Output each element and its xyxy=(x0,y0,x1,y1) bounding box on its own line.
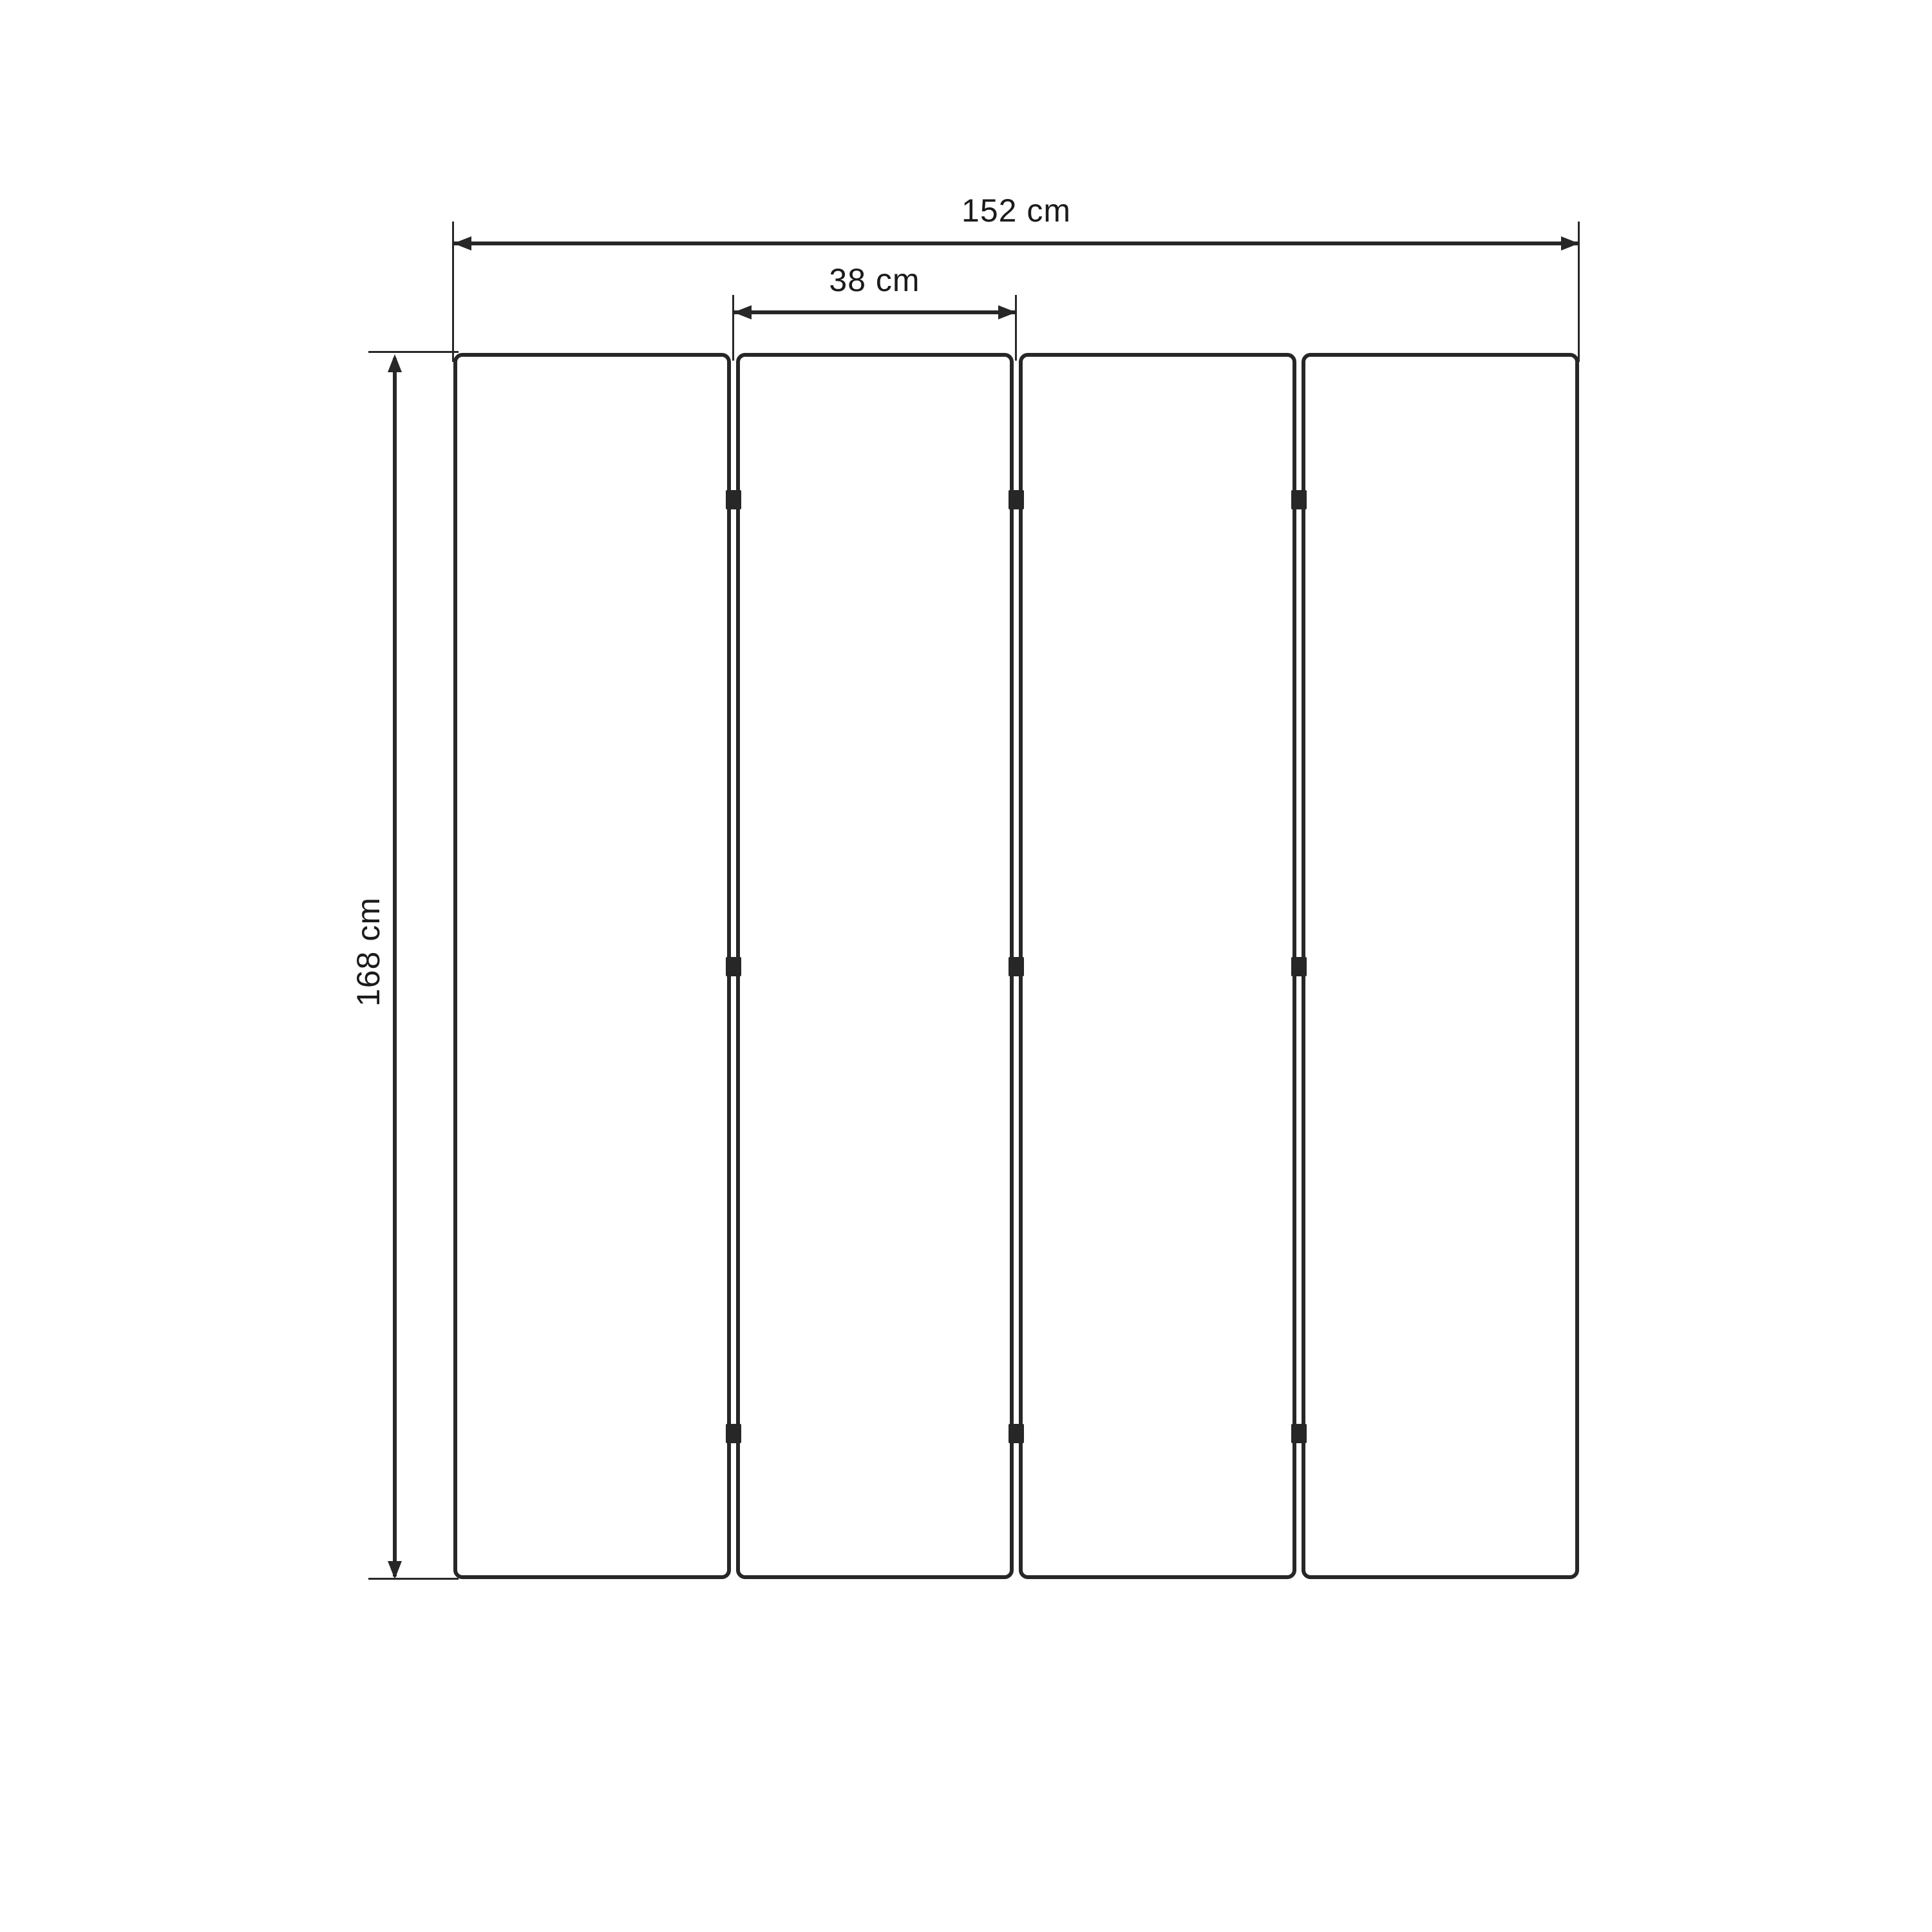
panel-2 xyxy=(736,353,1014,1579)
hinge xyxy=(726,490,741,509)
hinge xyxy=(1009,957,1024,976)
arrowhead-right-icon xyxy=(998,305,1016,319)
height-extension-line-top xyxy=(368,351,459,353)
panel-3 xyxy=(1019,353,1296,1579)
panel-width-label: 38 cm xyxy=(681,261,1068,299)
panel-1 xyxy=(453,353,731,1579)
total-width-label: 152 cm xyxy=(823,192,1209,229)
hinge xyxy=(726,957,741,976)
hinge xyxy=(1009,1424,1024,1443)
arrowhead-up-icon xyxy=(388,354,402,372)
arrowhead-right-icon xyxy=(1561,236,1579,251)
hinge xyxy=(1291,490,1307,509)
hinge xyxy=(726,1424,741,1443)
total-width-dimension-line xyxy=(453,241,1579,245)
height-extension-line-bottom xyxy=(368,1578,459,1580)
panel-width-dimension-line xyxy=(734,310,1016,314)
arrowhead-down-icon xyxy=(388,1561,402,1579)
hinge xyxy=(1009,490,1024,509)
arrowhead-left-icon xyxy=(453,236,471,251)
height-dimension-line xyxy=(393,358,397,1577)
arrowhead-left-icon xyxy=(734,305,752,319)
panel-4 xyxy=(1302,353,1579,1579)
height-label: 168 cm xyxy=(350,897,387,1007)
hinge xyxy=(1291,957,1307,976)
hinge xyxy=(1291,1424,1307,1443)
panel-screen-dimension-diagram: 152 cm 38 cm 168 cm xyxy=(0,0,1932,1932)
